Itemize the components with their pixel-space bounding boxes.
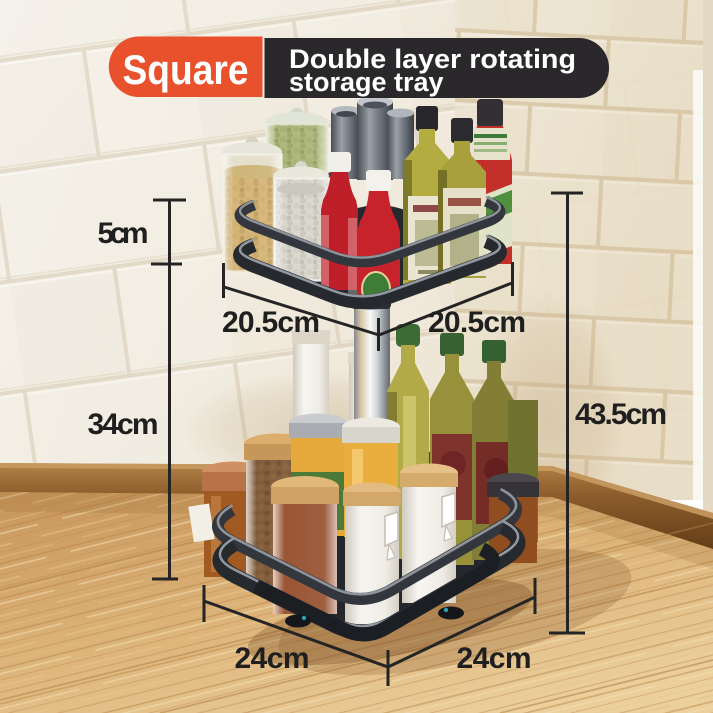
svg-text:24cm: 24cm — [457, 642, 532, 675]
svg-text:20.5cm: 20.5cm — [222, 306, 320, 339]
svg-text:34cm: 34cm — [88, 408, 159, 441]
svg-text:Square: Square — [123, 46, 249, 93]
svg-text:24cm: 24cm — [235, 642, 310, 675]
svg-text:5cm: 5cm — [98, 217, 149, 250]
svg-text:20.5cm: 20.5cm — [428, 306, 526, 339]
svg-text:storage tray: storage tray — [289, 67, 444, 97]
svg-text:43.5cm: 43.5cm — [575, 398, 667, 431]
